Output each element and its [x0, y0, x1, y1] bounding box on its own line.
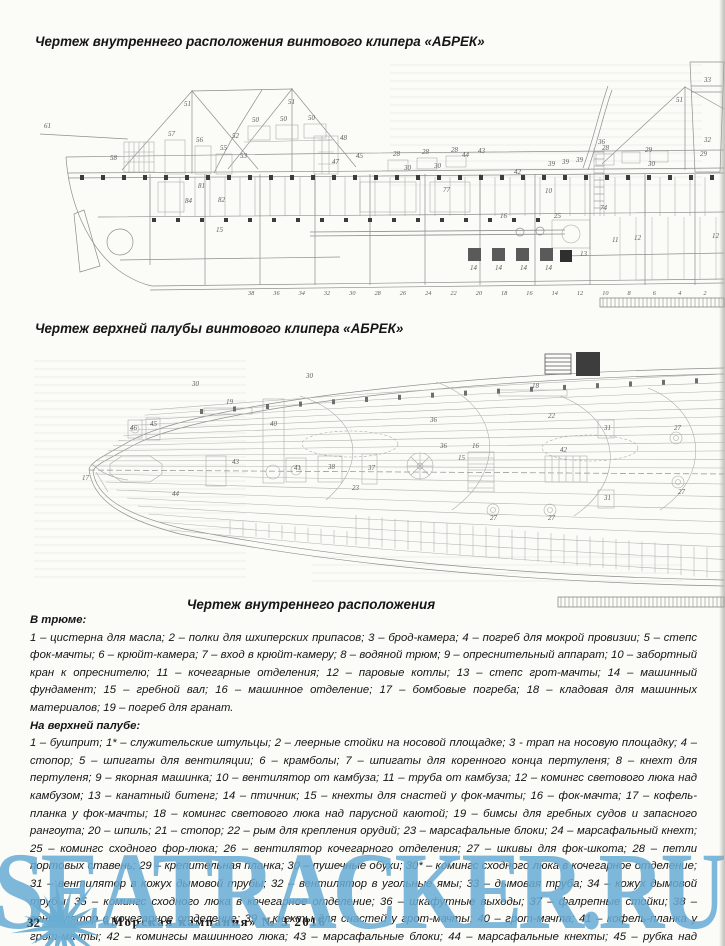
legend-deck-header: На верхней палубе: — [30, 718, 697, 736]
svg-text:28: 28 — [375, 290, 382, 297]
svg-text:39: 39 — [561, 158, 570, 166]
drawing2-details — [92, 374, 724, 607]
upper-deck-drawing: 3030194046451744434138372336361622313127… — [0, 352, 725, 612]
drawing1-details — [80, 152, 724, 307]
svg-text:32: 32 — [323, 290, 331, 297]
svg-text:39: 39 — [575, 156, 584, 164]
svg-text:28: 28 — [451, 146, 459, 154]
svg-text:11: 11 — [612, 236, 618, 244]
svg-text:50: 50 — [280, 115, 288, 123]
starburst-watermark — [0, 880, 156, 946]
svg-text:29: 29 — [700, 150, 708, 158]
svg-text:31: 31 — [603, 424, 611, 432]
page-number: 32 — [27, 915, 40, 931]
svg-text:77: 77 — [443, 186, 451, 194]
svg-text:16: 16 — [526, 290, 533, 297]
deck-gratings — [545, 352, 600, 376]
legend-hold-text: 1 – цистерна для масла; 2 – полки для шх… — [30, 630, 697, 718]
svg-text:27: 27 — [490, 514, 498, 522]
svg-text:24: 24 — [425, 290, 431, 297]
svg-text:30: 30 — [433, 162, 442, 170]
legend-hold-header: В трюме: — [30, 612, 697, 630]
svg-text:30: 30 — [647, 160, 656, 168]
drawing1-number-labels: 3836343230282624222018161412108642615857… — [44, 76, 720, 297]
svg-text:19: 19 — [226, 398, 234, 406]
svg-text:81: 81 — [198, 182, 205, 190]
svg-text:84: 84 — [185, 197, 193, 205]
svg-text:18: 18 — [532, 382, 540, 390]
svg-text:51: 51 — [288, 98, 295, 106]
legend-title: Чертеж внутреннего расположения — [0, 597, 622, 612]
svg-text:58: 58 — [110, 154, 118, 162]
drawing2-title: Чертеж верхней палубы винтового клипера … — [35, 321, 403, 336]
svg-text:10: 10 — [602, 290, 609, 297]
svg-text:14: 14 — [495, 264, 503, 272]
svg-text:6: 6 — [653, 290, 657, 297]
svg-text:12: 12 — [577, 290, 584, 297]
svg-text:22: 22 — [548, 412, 556, 420]
svg-text:74: 74 — [600, 204, 608, 212]
svg-text:30: 30 — [348, 290, 356, 297]
svg-text:18: 18 — [501, 290, 508, 297]
svg-text:40: 40 — [270, 420, 278, 428]
svg-text:4: 4 — [678, 290, 681, 297]
svg-text:36: 36 — [429, 416, 438, 424]
svg-text:38: 38 — [327, 463, 336, 471]
svg-text:36: 36 — [272, 290, 280, 297]
svg-text:34: 34 — [298, 290, 305, 297]
svg-text:39: 39 — [547, 160, 556, 168]
svg-text:50: 50 — [308, 114, 316, 122]
svg-text:36: 36 — [439, 442, 448, 450]
svg-text:12: 12 — [634, 234, 642, 242]
svg-text:44: 44 — [172, 490, 180, 498]
svg-text:32: 32 — [703, 136, 712, 144]
svg-text:30: 30 — [403, 164, 412, 172]
svg-text:45: 45 — [150, 420, 158, 428]
svg-text:51: 51 — [184, 100, 191, 108]
magazine-page: Чертеж внутреннего расположения винтовог… — [0, 0, 725, 946]
svg-text:16: 16 — [500, 212, 508, 220]
svg-text:52: 52 — [232, 132, 240, 140]
svg-text:27: 27 — [678, 488, 686, 496]
svg-text:55: 55 — [220, 144, 228, 152]
svg-text:14: 14 — [470, 264, 478, 272]
svg-text:46: 46 — [130, 424, 138, 432]
svg-text:30: 30 — [191, 380, 200, 388]
svg-text:53: 53 — [240, 152, 248, 160]
svg-text:37: 37 — [367, 464, 376, 472]
svg-text:47: 47 — [332, 158, 340, 166]
svg-text:45: 45 — [356, 152, 364, 160]
svg-text:28: 28 — [422, 148, 430, 156]
svg-text:23: 23 — [352, 484, 360, 492]
svg-text:15: 15 — [216, 226, 224, 234]
svg-text:82: 82 — [218, 196, 226, 204]
svg-text:38: 38 — [247, 290, 255, 297]
svg-text:17: 17 — [82, 474, 90, 482]
svg-text:36: 36 — [597, 138, 606, 146]
svg-text:15: 15 — [458, 454, 466, 462]
svg-text:48: 48 — [340, 134, 348, 142]
deckhouses — [124, 124, 668, 248]
svg-text:13: 13 — [580, 250, 588, 258]
svg-text:14: 14 — [552, 290, 558, 297]
svg-text:8: 8 — [628, 290, 632, 297]
internal-arrangement-drawing: 3836343230282624222018161412108642615857… — [0, 60, 725, 312]
svg-text:44: 44 — [462, 151, 470, 159]
svg-text:31: 31 — [603, 494, 611, 502]
svg-text:28: 28 — [393, 150, 401, 158]
svg-text:2: 2 — [703, 290, 707, 297]
svg-text:29: 29 — [645, 146, 653, 154]
svg-text:25: 25 — [554, 212, 562, 220]
svg-text:26: 26 — [400, 290, 407, 297]
svg-text:30: 30 — [305, 372, 314, 380]
svg-text:10: 10 — [545, 187, 553, 195]
drawing1-title: Чертеж внутреннего расположения винтовог… — [35, 34, 485, 49]
svg-text:42: 42 — [514, 168, 522, 176]
svg-text:43: 43 — [478, 147, 486, 155]
svg-text:43: 43 — [232, 458, 240, 466]
svg-text:33: 33 — [703, 76, 712, 84]
svg-text:20: 20 — [476, 290, 483, 297]
svg-text:27: 27 — [674, 424, 682, 432]
svg-text:56: 56 — [196, 136, 204, 144]
svg-text:57: 57 — [168, 130, 176, 138]
svg-text:16: 16 — [472, 442, 480, 450]
svg-text:42: 42 — [560, 446, 568, 454]
svg-text:22: 22 — [450, 290, 457, 297]
svg-text:41: 41 — [294, 464, 301, 472]
svg-text:27: 27 — [548, 514, 556, 522]
svg-text:51: 51 — [676, 96, 683, 104]
scan-page-edge — [719, 0, 725, 946]
svg-text:14: 14 — [545, 264, 553, 272]
svg-text:50: 50 — [252, 116, 260, 124]
svg-text:61: 61 — [44, 122, 51, 130]
masts-and-rigging — [122, 86, 724, 174]
svg-text:14: 14 — [520, 264, 528, 272]
